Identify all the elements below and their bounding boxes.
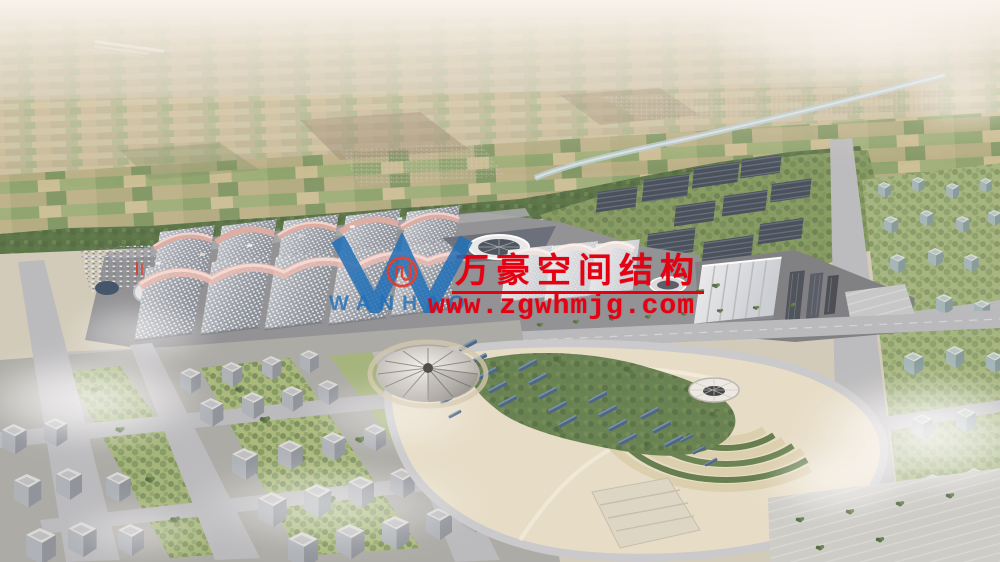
funnel-pavilion (689, 378, 739, 402)
side-pavilion (650, 277, 686, 293)
pond (95, 281, 119, 295)
aerial-rendering: WANHAO 万豪空间结构 www.zgwhmjg.com (0, 0, 1000, 562)
scene-graphic (0, 0, 1000, 562)
circus-tent (370, 342, 486, 406)
